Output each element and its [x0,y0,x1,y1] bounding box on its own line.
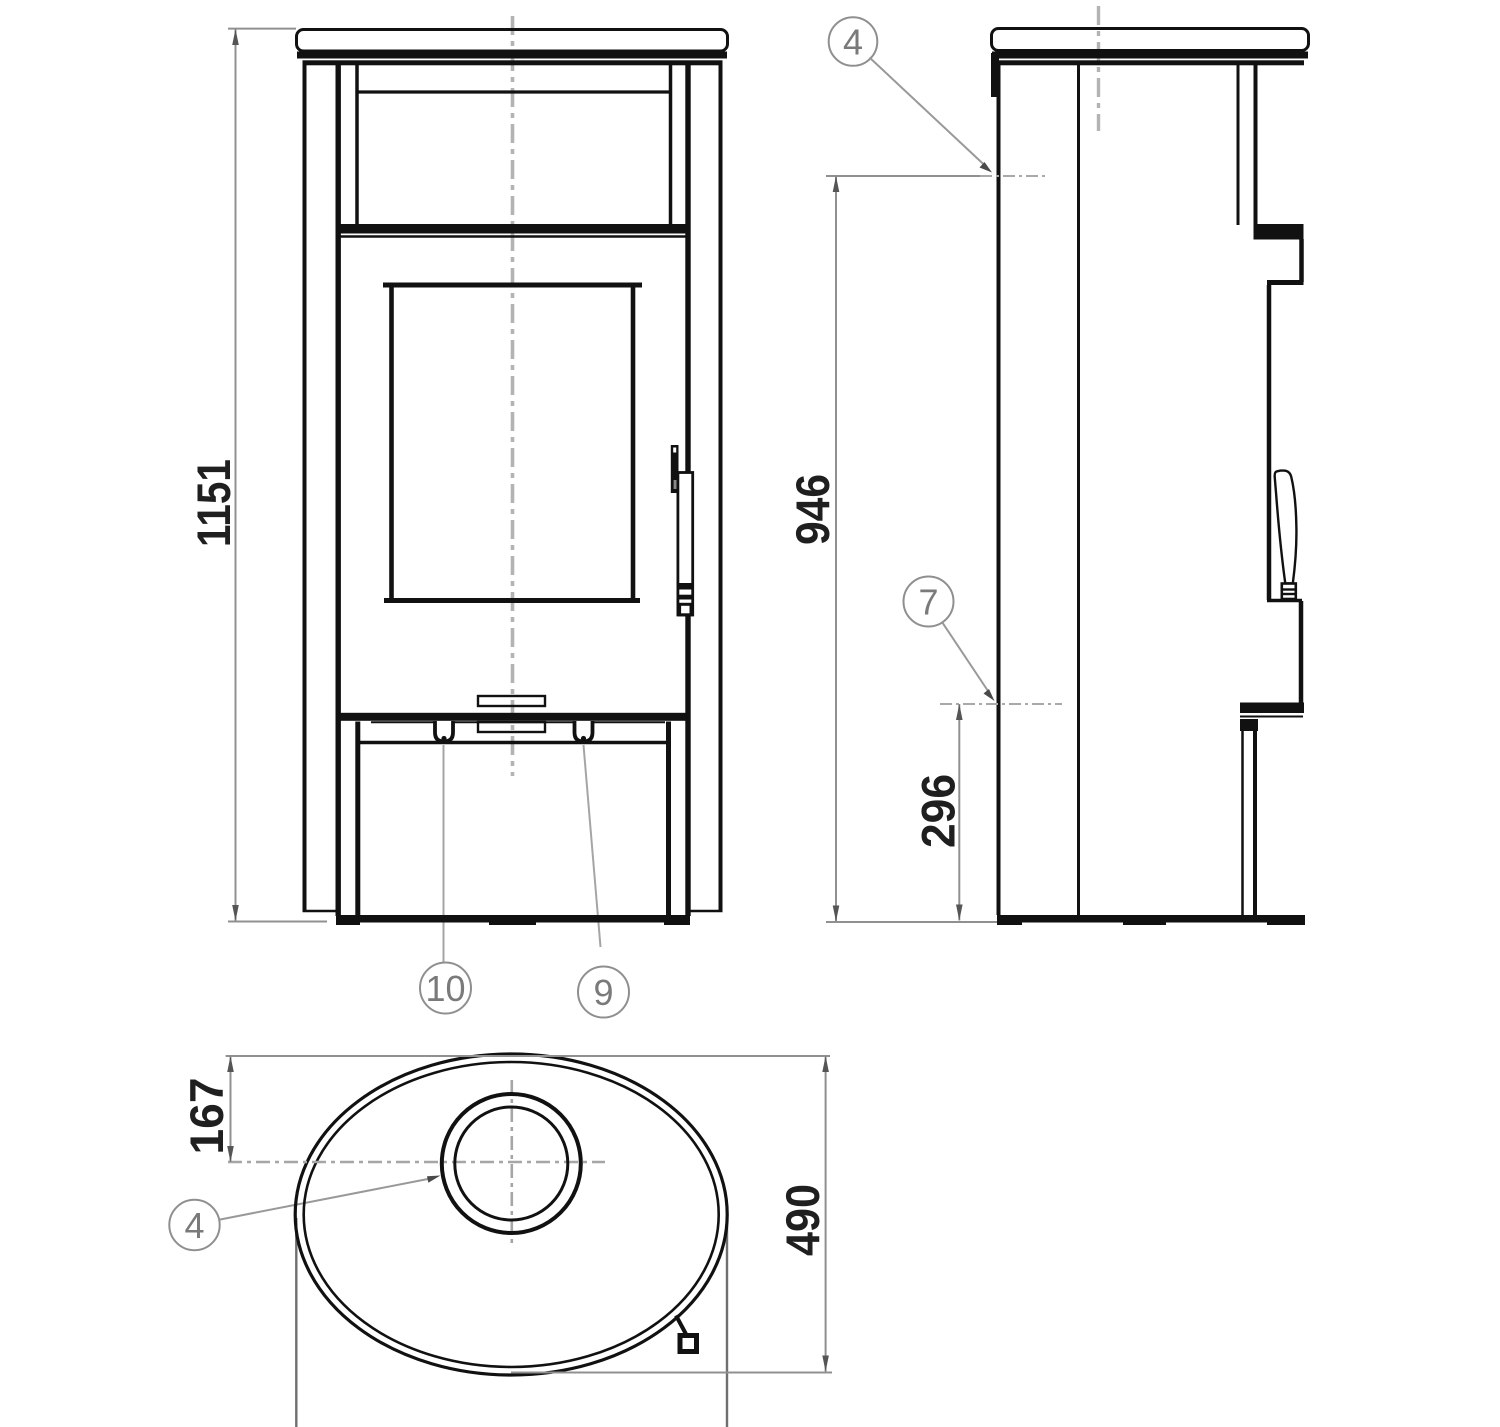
svg-text:946: 946 [786,474,839,545]
svg-text:4: 4 [843,22,863,63]
svg-text:296: 296 [912,774,965,848]
svg-text:10: 10 [425,968,465,1009]
svg-text:9: 9 [593,972,613,1013]
svg-text:167: 167 [180,1078,233,1155]
svg-text:490: 490 [776,1184,829,1256]
svg-text:4: 4 [184,1205,204,1246]
svg-text:7: 7 [918,582,938,623]
svg-text:1151: 1151 [187,459,240,547]
